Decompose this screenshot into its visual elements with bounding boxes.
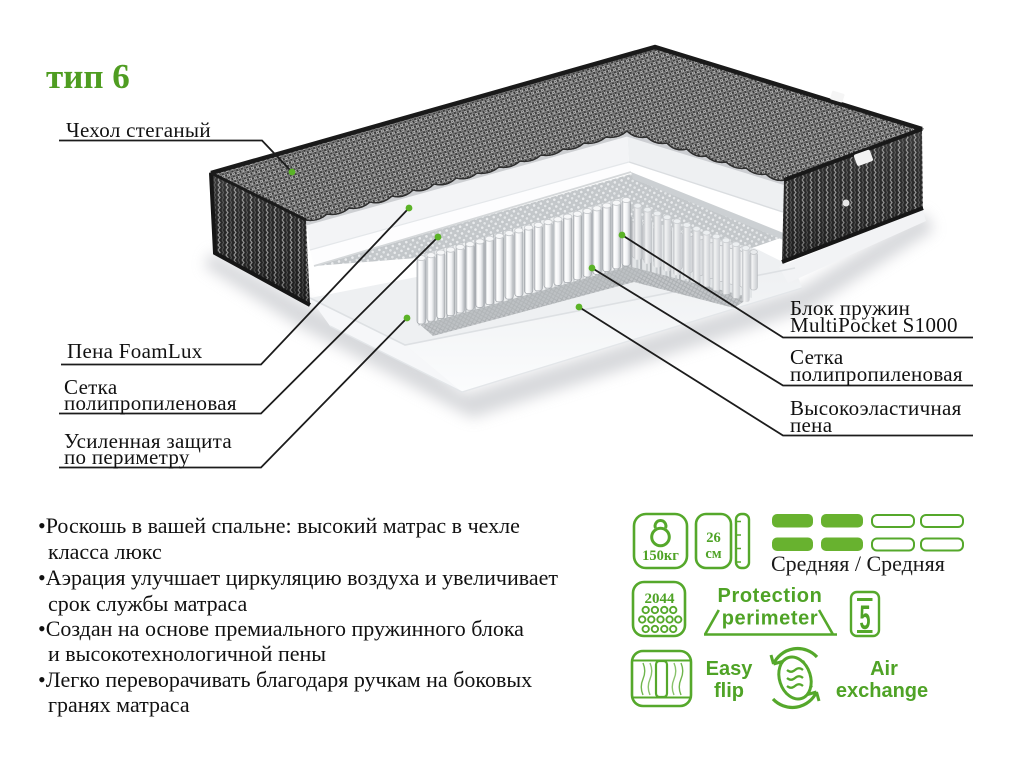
svg-text:полипропиленовая: полипропиленовая (64, 391, 237, 415)
svg-text:срок службы матраса: срок службы матраса (48, 591, 247, 616)
svg-text:•Создан на основе премиального: •Создан на основе премиального пружинног… (38, 616, 524, 641)
svg-text:полипропиленовая: полипропиленовая (790, 362, 963, 386)
svg-text:Air: Air (870, 658, 898, 680)
svg-text:150кг: 150кг (642, 548, 679, 564)
svg-text:Средняя / Средняя: Средняя / Средняя (771, 551, 945, 576)
svg-text:пена: пена (790, 413, 833, 437)
svg-text:Easy: Easy (706, 658, 754, 680)
svg-text:см: см (705, 546, 721, 562)
svg-text:тип 6: тип 6 (46, 57, 130, 96)
svg-text:и высокотехнологичной пены: и высокотехнологичной пены (48, 641, 326, 666)
svg-text:flip: flip (714, 680, 744, 702)
svg-text:класса люкс: класса люкс (48, 539, 162, 564)
svg-text:•Аэрация улучшает циркуляцию в: •Аэрация улучшает циркуляцию воздуха и у… (38, 565, 558, 590)
svg-text:по периметру: по периметру (64, 445, 190, 469)
svg-text:Protection: Protection (718, 585, 823, 607)
svg-text:5: 5 (860, 598, 871, 636)
svg-text:гранях матраса: гранях матраса (48, 692, 190, 717)
svg-text:2044: 2044 (645, 591, 676, 607)
svg-text:exchange: exchange (836, 680, 928, 702)
svg-text:MultiPocket S1000: MultiPocket S1000 (790, 313, 958, 337)
svg-text:•Легко переворачивать благодар: •Легко переворачивать благодаря ручкам н… (38, 667, 532, 692)
svg-text:perimeter: perimeter (722, 608, 819, 630)
svg-text:Пена FoamLux: Пена FoamLux (67, 339, 203, 363)
svg-text:•Роскошь в вашей спальне: высо: •Роскошь в вашей спальне: высокий матрас… (38, 513, 520, 538)
svg-text:Чехол стеганый: Чехол стеганый (66, 118, 211, 142)
svg-text:26: 26 (706, 530, 721, 546)
